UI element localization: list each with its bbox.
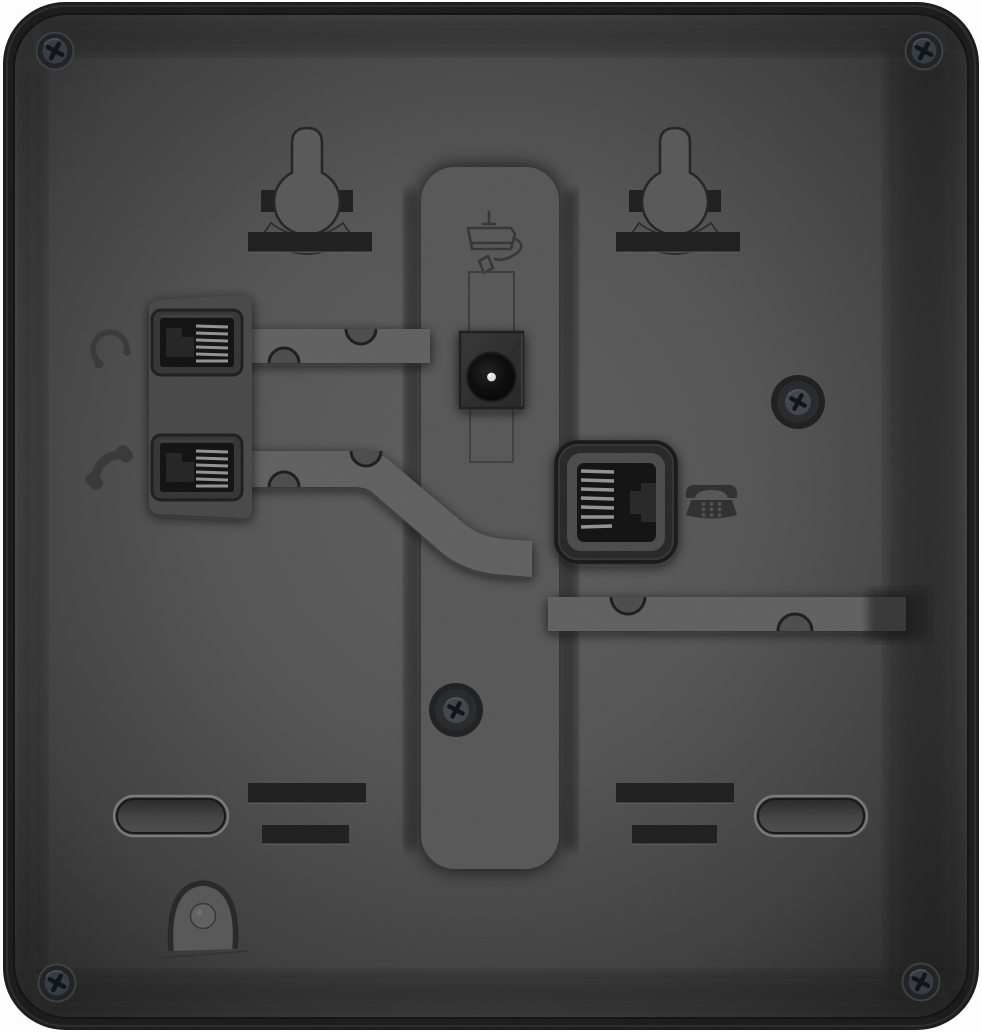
surface-texture (15, 15, 967, 1017)
device-photo (0, 0, 982, 1032)
